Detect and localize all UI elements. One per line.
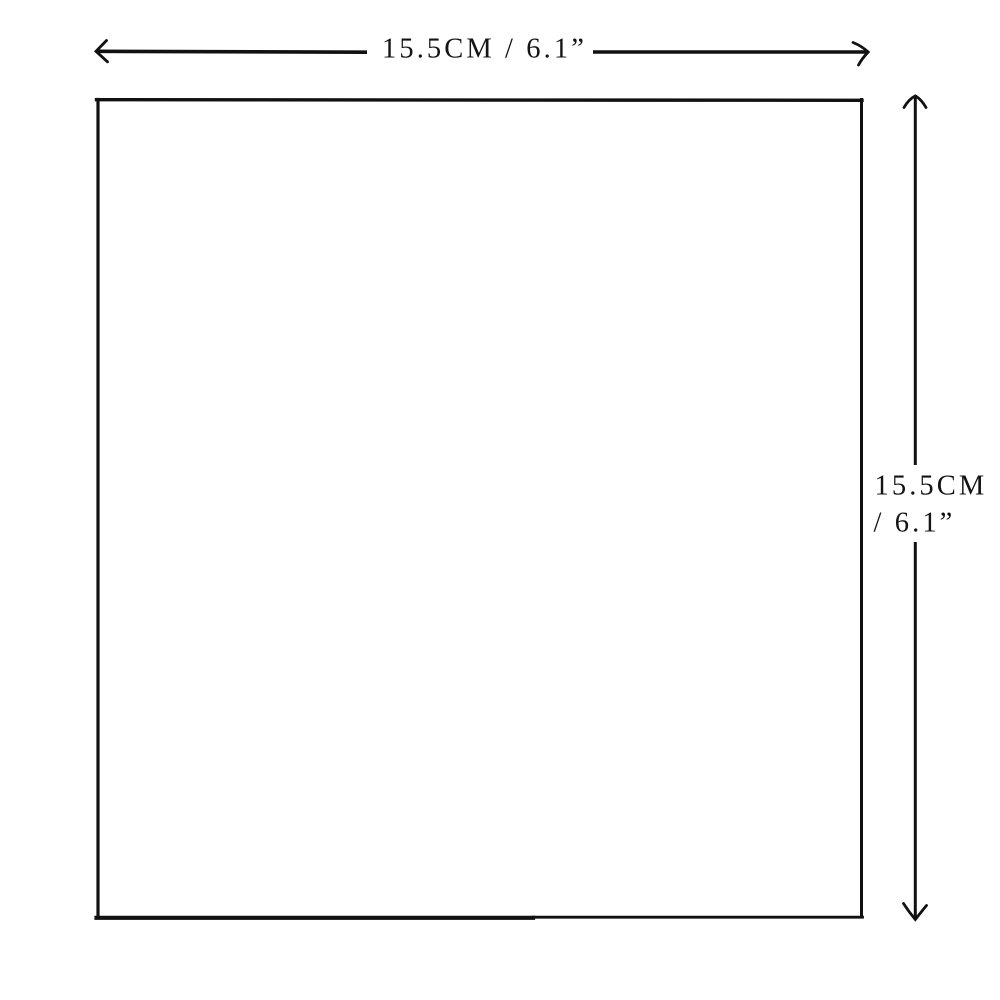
svg-text:15.5CM: 15.5CM: [875, 471, 988, 502]
svg-text:15.5CM / 6.1”: 15.5CM / 6.1”: [382, 34, 587, 65]
svg-text:/ 6.1”: / 6.1”: [874, 508, 956, 539]
